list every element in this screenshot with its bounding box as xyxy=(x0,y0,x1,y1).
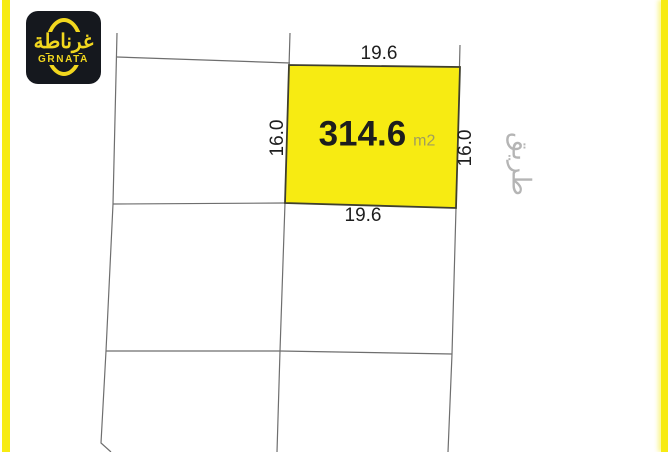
road-label: طريق xyxy=(506,132,537,196)
middle-lot-line xyxy=(113,203,285,204)
parcel-area-value: 314.6 xyxy=(319,117,407,152)
parcel-area: 314.6 m2 xyxy=(319,117,436,152)
left-boundary-line xyxy=(101,33,117,452)
lower-lot-line xyxy=(106,351,452,354)
parcel-left-dimension: 16.0 xyxy=(267,120,289,157)
parcel-top-dimension: 19.6 xyxy=(361,43,398,65)
parcel-right-dimension: 16.0 xyxy=(455,130,477,167)
parcel-bottom-dimension: 19.6 xyxy=(345,205,382,227)
parcel-area-unit: m2 xyxy=(413,134,435,150)
cadastral-drawing xyxy=(0,0,668,452)
logo-arabic-wordmark: غرناطة xyxy=(32,32,96,53)
listing-image: غرناطة GRNATA 19.6 19.6 16.0 16.0 314.6 … xyxy=(0,0,668,452)
logo-latin-wordmark: GRNATA xyxy=(36,54,91,65)
top-lot-line xyxy=(117,57,290,63)
